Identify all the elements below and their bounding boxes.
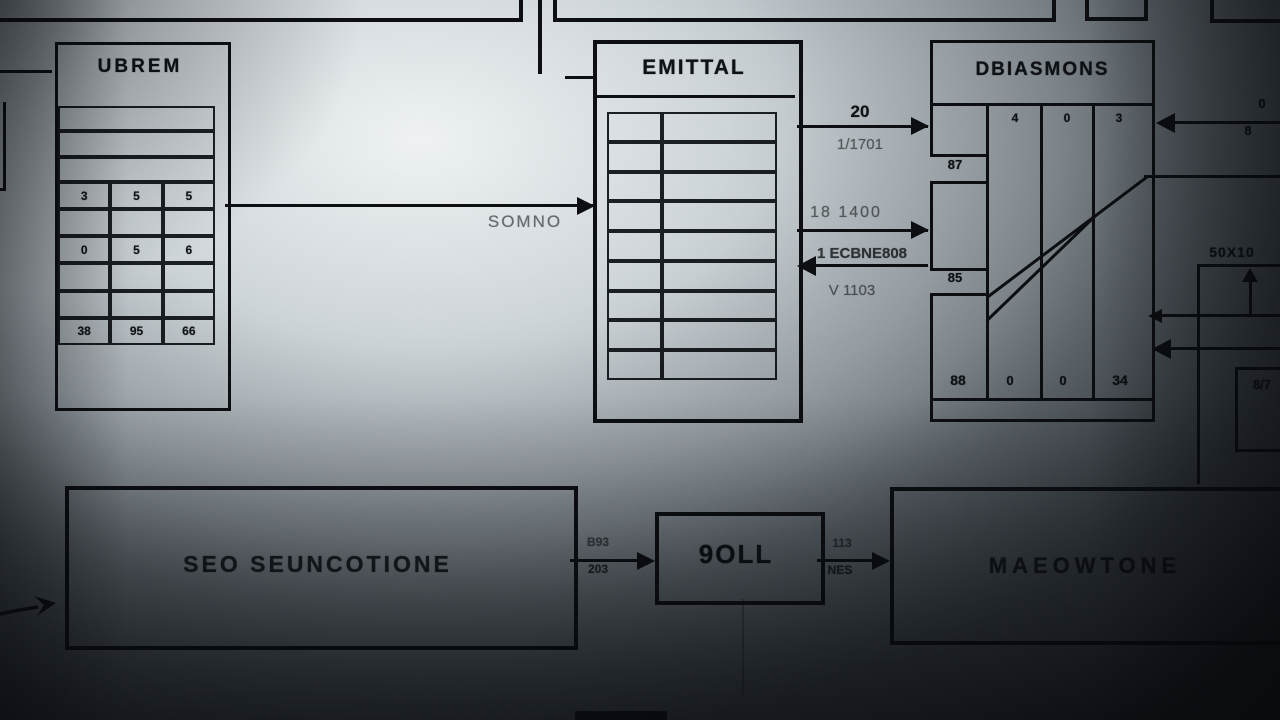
segment-label: 85 [938, 271, 972, 286]
emittal-left-stub [565, 76, 593, 79]
right-partial-box-top [1197, 264, 1280, 267]
diagonal-line [986, 176, 1148, 299]
arrowhead-right-icon [911, 221, 929, 239]
arrow-label: 0 [1250, 97, 1274, 112]
table-cell [58, 157, 215, 182]
table-cell: 95 [110, 318, 162, 345]
table-cell [607, 112, 662, 142]
table-cell [58, 263, 110, 290]
blueprint-diagram: UBREM 3 5 5 0 5 6 38 95 66 SOMNO EMITTAL… [0, 0, 1280, 720]
arrowhead-left-icon [1152, 339, 1171, 359]
bottom-right-partial-box-bottom [1235, 449, 1280, 452]
bottom-edge-smudge [575, 711, 667, 720]
table-cell: 66 [163, 318, 215, 345]
table-cell [110, 263, 162, 290]
dbiasmons-inner-bottom [930, 398, 1152, 401]
ubrem-table: 3 5 5 0 5 6 38 95 66 [58, 182, 215, 345]
table-cell [607, 261, 662, 291]
top-partial-box-right [1210, 0, 1280, 23]
arrow-label: NES [822, 564, 858, 578]
table-cell: 5 [110, 182, 162, 209]
table-cell [58, 131, 215, 156]
table-cell [662, 261, 777, 291]
column-value: 88 [938, 372, 978, 388]
table-cell: 3 [58, 182, 110, 209]
dbiasmons-column-divider [1040, 103, 1043, 401]
table-cell [110, 291, 162, 318]
arrow-label: 203 [580, 563, 616, 577]
table-cell: 5 [110, 236, 162, 263]
table-cell [662, 350, 777, 380]
column-value: 0 [1048, 374, 1078, 389]
table-cell [662, 231, 777, 261]
table-cell: 38 [58, 318, 110, 345]
table-cell [662, 291, 777, 321]
faint-connector-line [742, 599, 744, 695]
right-lower-box-label: 8/7 [1244, 378, 1280, 393]
table-cell [163, 291, 215, 318]
arrow-line [1160, 314, 1280, 317]
arrow-line [797, 229, 928, 232]
table-cell [607, 350, 662, 380]
squiggle-arrow-icon [0, 588, 70, 632]
arrow-line [797, 125, 928, 128]
table-cell: 0 [58, 236, 110, 263]
table-cell [607, 142, 662, 172]
table-cell [607, 291, 662, 321]
arrow-line [813, 264, 928, 267]
dbiasmons-column-divider [1092, 103, 1095, 401]
emittal-title-separator [593, 95, 795, 98]
column-value: 0 [1052, 112, 1082, 126]
table-cell [58, 106, 215, 131]
left-edge-partial-box [3, 102, 6, 190]
dbiasmons-segment-edge [930, 293, 989, 296]
top-connector-line [538, 0, 542, 74]
top-partial-box-center [553, 0, 1056, 22]
arrowhead-left-icon [1156, 113, 1175, 133]
table-cell [163, 209, 215, 236]
arrow-line [817, 559, 874, 562]
arrow-line [1170, 121, 1280, 124]
dbiasmons-column-divider [986, 103, 989, 401]
dbiasmons-left-edge-seg2 [930, 181, 933, 271]
arrow-line [1166, 347, 1280, 350]
dbiasmons-segment-edge [930, 181, 989, 184]
table-cell [607, 172, 662, 202]
column-value: 3 [1104, 112, 1134, 126]
arrow-label: B93 [580, 536, 616, 550]
column-value: 4 [1000, 112, 1030, 126]
right-box-label: 50X10 [1196, 244, 1268, 260]
dbiasmons-left-edge-seg3 [930, 293, 933, 422]
segment-label: 87 [938, 158, 972, 173]
table-cell: 5 [163, 182, 215, 209]
table-cell [607, 231, 662, 261]
emittal-table [607, 112, 777, 380]
arrowhead-right-icon [911, 117, 929, 135]
right-partial-box-left [1197, 264, 1200, 484]
dbiasmons-bottom-edge [930, 419, 1155, 422]
maeowtone-title: MAEOWTONE [890, 551, 1280, 581]
arrow-label: 113 [824, 537, 860, 551]
arrowhead-right-icon [637, 552, 655, 570]
table-cell [662, 320, 777, 350]
table-cell [110, 209, 162, 236]
arrow-label: 18 1400 [796, 204, 896, 222]
left-edge-partial-box-bottom [0, 188, 6, 191]
top-partial-box-left [0, 0, 523, 22]
soll-title: 9OLL [655, 512, 817, 597]
bottom-right-partial-box-left [1235, 367, 1238, 452]
column-value: 0 [995, 374, 1025, 389]
dbiasmons-right-edge [1152, 40, 1155, 422]
emittal-title: EMITTAL [593, 52, 795, 84]
arrowhead-up-icon [1242, 268, 1258, 282]
arrow-label: SOMNO [460, 212, 590, 232]
dbiasmons-title: DBIASMONS [930, 55, 1155, 85]
ubrem-header-rows [58, 106, 215, 182]
table-cell [662, 172, 777, 202]
table-cell [607, 320, 662, 350]
table-cell: 6 [163, 236, 215, 263]
arrow-label: 20 [840, 102, 880, 122]
ubrem-title: UBREM [55, 52, 225, 82]
diagonal-extension-line [1144, 175, 1280, 178]
table-cell [163, 263, 215, 290]
table-cell [662, 142, 777, 172]
table-cell [607, 201, 662, 231]
up-arrow-stem [1249, 281, 1252, 317]
bottom-right-partial-box-top [1235, 367, 1280, 370]
dbiasmons-box [930, 40, 1155, 43]
arrowhead-right-icon [872, 552, 890, 570]
seo-title: SEO SEUNCOTIONE [65, 486, 570, 642]
arrow-line-ubrem-emittal [225, 204, 593, 207]
top-partial-box-small [1085, 0, 1148, 21]
table-cell [662, 112, 777, 142]
table-cell [58, 291, 110, 318]
left-edge-stub-line [0, 70, 52, 73]
arrow-label: 1/1701 [828, 136, 892, 153]
arrow-label: 8 [1236, 124, 1260, 139]
column-value: 34 [1100, 372, 1140, 388]
table-cell [662, 201, 777, 231]
table-cell [58, 209, 110, 236]
arrow-label: V 1103 [812, 282, 892, 299]
arrowhead-left-icon [1148, 309, 1162, 323]
arrow-label: 1 ECBNE808 [806, 245, 918, 262]
